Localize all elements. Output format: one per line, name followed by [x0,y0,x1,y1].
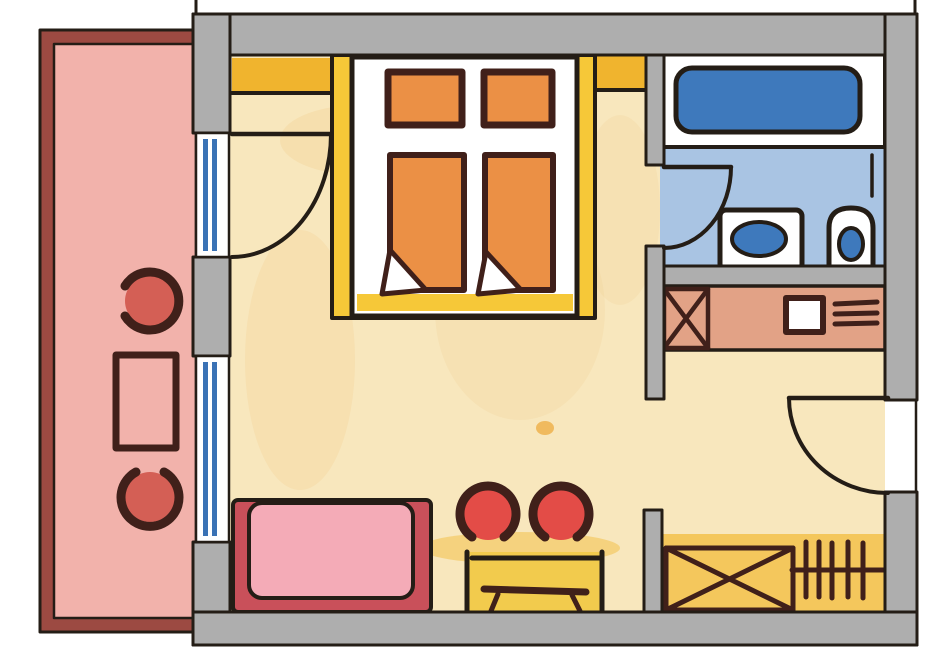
wall-right-upper [885,14,917,400]
window-glass [212,362,217,536]
balcony-floor [54,44,196,618]
kitchen-sink [786,298,823,332]
wall-bottom [193,612,917,645]
partition-wall-bottom [644,510,662,614]
balcony-door-glass [212,139,217,251]
desk-stool-seat [484,589,586,592]
window-left [196,356,229,542]
wall-left-upper [193,14,230,133]
desk-top [467,552,602,612]
bed-frame-foot-band [357,294,573,311]
floor-spot [536,421,554,435]
partition-wall-bathroom-upper [646,53,664,165]
floor-plan [0,0,940,669]
window-glass [203,362,208,536]
gold-band-right [595,56,648,89]
bathroom [660,53,885,270]
partition-wall-bathroom-lower [646,246,664,399]
kitchenette [660,266,886,350]
wall-left-middle [193,257,230,356]
washbasin-bowl [732,222,786,256]
kitchen-divider-wall [660,266,886,286]
sofa-seat [249,503,413,598]
double-bed [332,55,595,318]
wall-top [193,14,917,55]
toilet-bowl [839,228,863,260]
pillow-right [484,72,552,125]
balcony-door-glass [203,139,208,251]
pillow-left [388,72,462,125]
floor-plan-drawing [0,0,940,669]
wardrobe-area [660,534,886,612]
kitchenette-counter [662,286,885,350]
bathtub-basin [676,68,860,132]
balcony [40,30,196,632]
